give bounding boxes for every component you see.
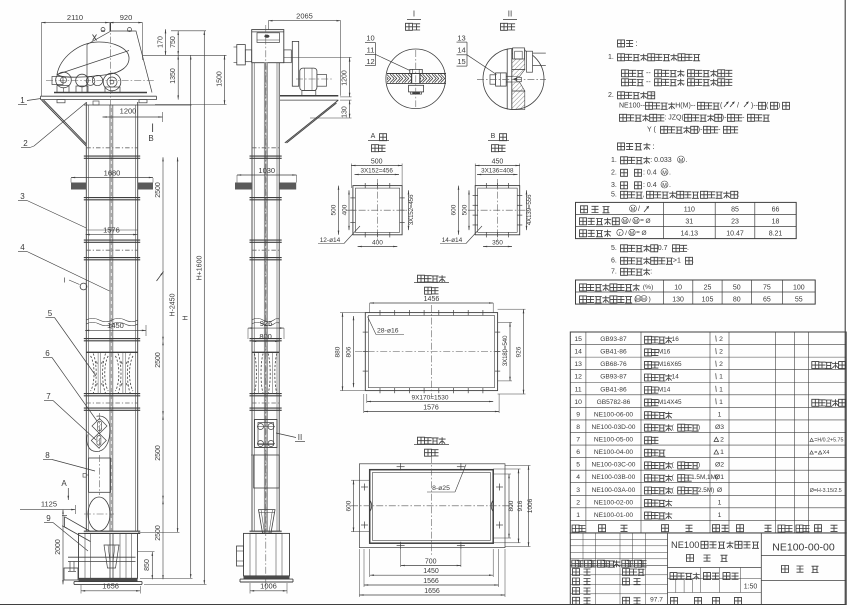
svg-text:1.: 1. [611, 157, 617, 164]
svg-text:170: 170 [158, 36, 165, 48]
svg-text:GB5782-86: GB5782-86 [597, 399, 631, 406]
svg-text:/: / [737, 103, 739, 110]
svg-text:1656: 1656 [424, 588, 440, 595]
svg-text:2: 2 [719, 336, 723, 343]
svg-text:500: 500 [371, 158, 383, 165]
svg-text:GB93-87: GB93-87 [600, 374, 627, 381]
svg-text:25: 25 [704, 284, 712, 291]
svg-text:2000: 2000 [55, 539, 62, 555]
svg-text:880: 880 [335, 346, 342, 357]
svg-text:6.: 6. [611, 258, 617, 265]
svg-text:1: 1 [718, 411, 722, 418]
svg-text:8: 8 [576, 424, 580, 431]
svg-text:): ) [649, 296, 651, 303]
svg-text:400: 400 [341, 204, 348, 215]
svg-text:1: 1 [576, 512, 580, 519]
svg-text:2: 2 [720, 437, 724, 444]
svg-text:1: 1 [20, 96, 25, 105]
svg-text:Ø: Ø [645, 218, 650, 225]
svg-text:7: 7 [576, 437, 580, 444]
svg-text:3: 3 [20, 192, 25, 201]
svg-text:): ) [698, 424, 700, 431]
svg-text:10.47: 10.47 [726, 231, 744, 238]
svg-text:12-ø14: 12-ø14 [320, 237, 341, 244]
svg-text:B: B [491, 133, 496, 140]
svg-text:1680: 1680 [104, 168, 121, 177]
svg-text:55: 55 [795, 296, 803, 303]
svg-text:B: B [148, 134, 153, 143]
svg-text:M: M [662, 183, 667, 189]
svg-text:M14X45: M14X45 [658, 399, 682, 406]
svg-text:: 0.033: : 0.033 [650, 157, 672, 164]
svg-text:9X170=1530: 9X170=1530 [411, 394, 448, 401]
svg-text:50: 50 [733, 284, 741, 291]
svg-text:1456: 1456 [424, 296, 440, 303]
svg-text:M14: M14 [658, 386, 671, 393]
svg-text:: JZQ(: : JZQ( [664, 115, 684, 122]
svg-text:700: 700 [425, 558, 437, 565]
svg-text:NE100-03D-00: NE100-03D-00 [591, 424, 635, 431]
svg-text:8: 8 [45, 451, 50, 460]
svg-text:0.7: 0.7 [658, 245, 668, 252]
svg-text:10: 10 [674, 284, 682, 291]
svg-text:15: 15 [457, 57, 465, 66]
svg-text:1125: 1125 [41, 500, 57, 509]
svg-text:6: 6 [576, 449, 580, 456]
svg-text:GB41-86: GB41-86 [600, 386, 627, 393]
svg-text:4: 4 [20, 243, 25, 252]
svg-text:6: 6 [45, 349, 50, 358]
svg-text:18: 18 [772, 219, 780, 226]
svg-text:.: . [669, 170, 671, 177]
svg-text:2065: 2065 [296, 12, 313, 21]
svg-text:)-: )- [698, 127, 703, 134]
svg-text:NE100-05-00: NE100-05-00 [594, 437, 634, 444]
svg-text::: : [652, 92, 654, 99]
svg-text:): ) [698, 462, 700, 469]
svg-text:Y (: Y ( [647, 127, 656, 134]
svg-text:1500: 1500 [217, 71, 224, 87]
svg-text:M: M [679, 158, 684, 164]
svg-text:110: 110 [684, 207, 695, 214]
svg-text:2.: 2. [608, 92, 614, 99]
svg-text:16: 16 [672, 336, 680, 343]
svg-text:NE100-02-00: NE100-02-00 [594, 499, 634, 506]
svg-text:14: 14 [457, 45, 465, 54]
svg-text:1: 1 [719, 374, 723, 381]
svg-text::: : [650, 269, 652, 276]
svg-text:8-ø25: 8-ø25 [432, 485, 450, 492]
svg-text:Ø=H-3.15/2.5: Ø=H-3.15/2.5 [810, 488, 842, 494]
svg-text:100: 100 [793, 284, 805, 291]
svg-text:H: H [183, 315, 190, 320]
svg-text::: : [738, 192, 740, 199]
svg-text:M: M [634, 219, 638, 225]
svg-text::: : [635, 39, 637, 48]
svg-text:NE100-03C-00: NE100-03C-00 [591, 462, 635, 469]
svg-text:/: / [625, 230, 627, 237]
svg-text:II: II [508, 10, 512, 19]
svg-text:: 0.4: : 0.4 [643, 170, 657, 177]
svg-text:H-2450: H-2450 [170, 293, 177, 316]
svg-text:M: M [630, 231, 634, 237]
svg-text:400: 400 [372, 240, 383, 247]
svg-text:II: II [298, 433, 302, 442]
svg-text:=: = [636, 229, 640, 236]
svg-text:.: . [687, 245, 689, 252]
svg-text:806: 806 [346, 346, 353, 357]
svg-text:1656: 1656 [102, 582, 119, 591]
svg-text:1030: 1030 [258, 166, 275, 175]
svg-text:I: I [64, 278, 66, 285]
svg-text:7.: 7. [611, 269, 617, 276]
svg-text:800: 800 [508, 500, 515, 511]
svg-text:4: 4 [576, 474, 580, 481]
svg-text::: : [653, 142, 655, 151]
svg-text:=H/0.2+5.75: =H/0.2+5.75 [814, 438, 843, 444]
svg-text:M16: M16 [658, 349, 671, 356]
svg-text:916: 916 [517, 500, 524, 511]
svg-text:450: 450 [492, 158, 504, 165]
svg-text:350: 350 [492, 240, 503, 247]
svg-text:130: 130 [672, 296, 684, 303]
svg-text:13: 13 [574, 361, 582, 368]
svg-text:NE100: NE100 [671, 540, 699, 550]
svg-text:1450: 1450 [423, 568, 439, 575]
svg-text:1: 1 [719, 399, 723, 406]
svg-text:2500: 2500 [155, 182, 162, 198]
svg-text:8.21: 8.21 [769, 231, 783, 238]
svg-text:1:50: 1:50 [744, 584, 758, 591]
svg-text:600: 600 [346, 500, 353, 511]
svg-text:28-ø16: 28-ø16 [377, 328, 399, 335]
svg-text:A: A [61, 479, 67, 488]
svg-text:,: , [643, 192, 645, 199]
svg-text:2.: 2. [611, 170, 617, 177]
svg-text:Ø: Ø [717, 487, 723, 494]
svg-text:600: 600 [451, 204, 458, 215]
svg-text:.: . [669, 182, 671, 189]
svg-text:NE100-06-00: NE100-06-00 [594, 411, 634, 418]
svg-text:NE100-04-00: NE100-04-00 [594, 449, 634, 456]
svg-text:66: 66 [772, 207, 780, 214]
svg-text:)-: )- [722, 115, 727, 122]
svg-text:M: M [636, 297, 640, 303]
svg-text:920: 920 [120, 13, 133, 22]
svg-text:1200: 1200 [342, 70, 349, 86]
svg-text:14: 14 [672, 374, 680, 381]
svg-text:.: . [686, 157, 688, 164]
svg-text:/: / [638, 206, 640, 213]
svg-text:500: 500 [461, 204, 468, 215]
svg-text:Ø: Ø [641, 230, 646, 237]
svg-text:M: M [623, 219, 627, 225]
svg-text:Ø2: Ø2 [715, 462, 724, 469]
svg-text:1576: 1576 [423, 404, 439, 411]
svg-text:: 0.4: : 0.4 [643, 182, 657, 189]
svg-text:9: 9 [576, 411, 580, 418]
svg-text:5.: 5. [611, 192, 617, 199]
svg-text:3.: 3. [611, 182, 617, 189]
svg-text:5.: 5. [611, 245, 617, 252]
svg-text:I: I [413, 10, 415, 19]
svg-text:31: 31 [685, 219, 693, 226]
svg-text:--: -- [646, 70, 651, 77]
svg-text:1.: 1. [608, 54, 614, 61]
svg-text:A: A [371, 133, 376, 140]
svg-text:3X152=456: 3X152=456 [360, 168, 393, 175]
svg-text:12: 12 [366, 57, 374, 66]
svg-text:1: 1 [720, 449, 724, 456]
svg-text:Ø1: Ø1 [715, 474, 724, 481]
svg-text:2.5M): 2.5M) [698, 487, 714, 494]
svg-text:M: M [642, 297, 646, 303]
svg-text:80: 80 [733, 296, 741, 303]
svg-text:H+1600: H+1600 [196, 256, 203, 281]
svg-text:1006: 1006 [527, 498, 534, 513]
svg-text:14-ø14: 14-ø14 [442, 237, 463, 244]
svg-text:11: 11 [575, 386, 582, 393]
svg-text:=: = [640, 217, 644, 224]
svg-text:11: 11 [367, 45, 375, 54]
svg-text:Ø3: Ø3 [715, 424, 724, 431]
svg-text:1: 1 [719, 386, 723, 393]
svg-text:10: 10 [574, 399, 582, 406]
svg-text:3X152=456: 3X152=456 [408, 194, 415, 225]
svg-text:1350: 1350 [170, 68, 177, 84]
svg-text:15: 15 [574, 336, 582, 343]
svg-text:GB68-76: GB68-76 [600, 361, 627, 368]
svg-text:3X180=540: 3X180=540 [502, 335, 509, 366]
svg-text:12: 12 [574, 374, 582, 381]
svg-text:5: 5 [576, 462, 580, 469]
svg-text:2: 2 [719, 361, 723, 368]
svg-text:65: 65 [763, 296, 771, 303]
svg-text:926: 926 [515, 346, 522, 357]
svg-text:75: 75 [763, 284, 771, 291]
svg-text:2: 2 [719, 349, 723, 356]
svg-text:14: 14 [574, 349, 582, 356]
svg-text:NE100-03A-00: NE100-03A-00 [592, 487, 636, 494]
svg-text:130: 130 [342, 106, 349, 118]
svg-text:10: 10 [366, 34, 374, 43]
svg-text:1576: 1576 [103, 225, 120, 234]
svg-text:850: 850 [144, 559, 151, 571]
svg-text:2: 2 [23, 139, 28, 148]
svg-text:3X136=408: 3X136=408 [481, 168, 514, 175]
svg-text:750: 750 [170, 36, 177, 48]
svg-text:): ) [778, 103, 780, 110]
svg-text:>1: >1 [673, 258, 681, 265]
svg-text:M16X65: M16X65 [658, 361, 682, 368]
svg-text:M: M [631, 207, 636, 213]
svg-text:13: 13 [457, 34, 465, 43]
svg-text:--: -- [646, 79, 651, 86]
svg-text:X4: X4 [823, 450, 830, 456]
svg-text:1006: 1006 [260, 582, 277, 591]
svg-text:23: 23 [731, 219, 739, 226]
svg-text:5: 5 [48, 309, 53, 318]
svg-text:1450: 1450 [107, 321, 124, 330]
svg-text:NE100-00-00: NE100-00-00 [772, 542, 835, 554]
svg-text:NE100-01-00: NE100-01-00 [594, 512, 634, 519]
svg-text:9: 9 [46, 514, 51, 523]
svg-text:500: 500 [331, 204, 338, 215]
svg-text:1566: 1566 [423, 578, 439, 585]
svg-text:/: / [629, 218, 631, 225]
svg-text:2110: 2110 [67, 13, 83, 22]
svg-text:97.7: 97.7 [650, 597, 663, 604]
svg-text:.: . [692, 258, 694, 265]
svg-text:,: , [683, 70, 685, 77]
svg-text:85: 85 [731, 207, 739, 214]
svg-text:4X139=556: 4X139=556 [526, 194, 533, 225]
svg-text:105: 105 [702, 296, 714, 303]
svg-text:1200: 1200 [120, 107, 137, 116]
svg-text:(%): (%) [643, 284, 654, 291]
svg-text:1: 1 [718, 499, 722, 506]
svg-text:)--: )-- [751, 103, 759, 110]
svg-text:M: M [662, 171, 667, 177]
svg-text:NE100--: NE100-- [619, 103, 646, 110]
svg-text:2: 2 [576, 499, 580, 506]
svg-text:=: = [814, 450, 817, 456]
svg-text:,: , [683, 79, 685, 86]
svg-text:1: 1 [718, 512, 722, 519]
svg-text:3: 3 [576, 487, 580, 494]
svg-text:2500: 2500 [155, 352, 162, 368]
svg-text:NE100-03B-00: NE100-03B-00 [592, 474, 636, 481]
svg-text:14.13: 14.13 [681, 231, 699, 238]
svg-text:H(M)--: H(M)-- [675, 103, 696, 110]
svg-text:2500: 2500 [155, 525, 162, 541]
svg-text:GB93-87: GB93-87 [600, 336, 627, 343]
svg-text:GB41-86: GB41-86 [600, 349, 627, 356]
svg-text:7: 7 [46, 392, 51, 401]
svg-text:2500: 2500 [155, 445, 162, 461]
